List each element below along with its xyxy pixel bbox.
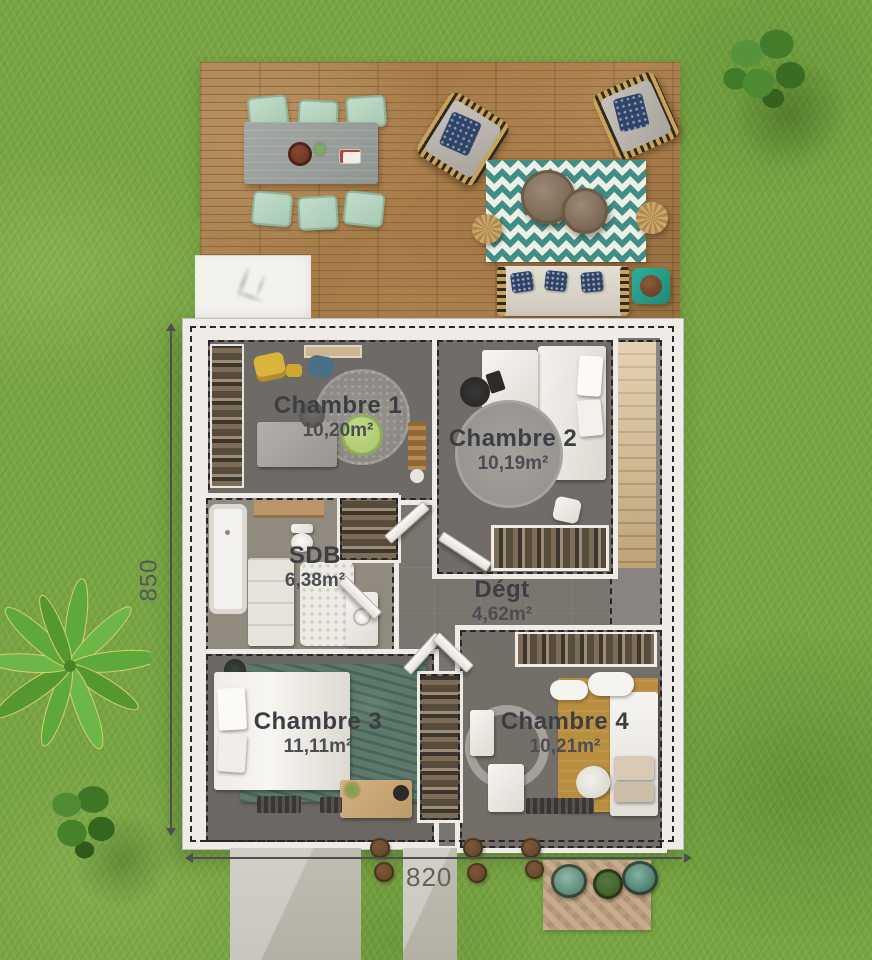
desk-chair bbox=[299, 402, 325, 428]
vanity bbox=[254, 500, 324, 518]
stepping-stone bbox=[370, 838, 390, 858]
wardrobe bbox=[212, 346, 242, 486]
yellow-ottoman bbox=[286, 364, 302, 377]
navy-pillow bbox=[580, 271, 604, 293]
closet bbox=[518, 634, 654, 664]
cloud-shelf bbox=[588, 672, 634, 696]
desk-tray bbox=[393, 785, 409, 801]
bed-pillow bbox=[217, 733, 248, 773]
potted-plant-icon bbox=[593, 869, 623, 899]
waste-bin bbox=[410, 469, 424, 483]
white-roof-section bbox=[195, 255, 311, 320]
stepping-stone bbox=[374, 862, 394, 882]
knit-pouf bbox=[552, 496, 582, 525]
navy-pillow bbox=[510, 271, 535, 294]
toilet-bowl bbox=[291, 533, 313, 552]
stepping-stone bbox=[467, 863, 487, 883]
planter-icon bbox=[288, 142, 312, 166]
staircase bbox=[610, 340, 662, 634]
bed-pillow bbox=[614, 782, 654, 802]
stepping-stone bbox=[521, 838, 541, 858]
yellow-armchair bbox=[253, 351, 288, 383]
round-rug bbox=[455, 400, 563, 508]
navy-pillow bbox=[544, 270, 568, 292]
room-chambre-1 bbox=[208, 340, 436, 500]
sofa-armrest bbox=[497, 266, 506, 316]
bathtub-drain bbox=[225, 530, 230, 535]
concrete-path-wide bbox=[230, 848, 361, 960]
pouf bbox=[472, 214, 502, 244]
dining-chair bbox=[251, 190, 294, 227]
radiator bbox=[526, 798, 594, 814]
dining-chair bbox=[342, 190, 385, 228]
stair-steps bbox=[612, 342, 656, 568]
dimension-arrow-left bbox=[180, 853, 193, 863]
tray-icon bbox=[640, 275, 662, 297]
sofa-armrest bbox=[620, 266, 629, 316]
dimension-left-label: 850 bbox=[136, 558, 164, 601]
bed-pillow bbox=[576, 399, 603, 437]
desk-plant-icon bbox=[342, 780, 362, 800]
outdoor-sofa bbox=[497, 266, 629, 316]
dimension-arrow-right bbox=[684, 853, 697, 863]
cabinet bbox=[470, 710, 494, 756]
pouf bbox=[636, 202, 668, 234]
hall-closet bbox=[340, 498, 398, 560]
dimension-arrow-down bbox=[166, 828, 176, 841]
stepping-stone bbox=[525, 860, 544, 879]
dimension-arrow-up bbox=[166, 318, 176, 331]
central-wardrobe bbox=[420, 674, 460, 820]
room-chambre-2 bbox=[437, 340, 613, 574]
radiator bbox=[257, 796, 301, 813]
bathtub bbox=[209, 504, 247, 614]
shrub-bottom-left-icon bbox=[30, 768, 135, 873]
bed-pillow bbox=[577, 355, 604, 397]
coffee-table bbox=[562, 188, 608, 234]
bed-pillow bbox=[614, 756, 654, 780]
dimension-line-vertical bbox=[170, 324, 172, 832]
dimension-line-horizontal bbox=[186, 857, 682, 859]
dimension-bottom-label: 820 bbox=[406, 862, 452, 893]
tree-top-right-icon bbox=[710, 12, 825, 127]
ladder-shelf bbox=[408, 422, 426, 470]
potted-plant-icon bbox=[551, 864, 587, 898]
room-chambre-3 bbox=[206, 654, 434, 842]
lounge-chair bbox=[590, 69, 681, 162]
palm-plant-icon bbox=[0, 578, 150, 758]
serving-tray bbox=[340, 150, 360, 163]
toilet-tank bbox=[291, 524, 313, 533]
desk bbox=[257, 422, 337, 467]
stepping-stone bbox=[463, 838, 483, 858]
bathroom-cabinet bbox=[248, 558, 294, 646]
cloud-shelf bbox=[550, 680, 588, 700]
table-plant-icon bbox=[312, 140, 328, 158]
branch-shadow bbox=[206, 252, 291, 329]
desk bbox=[488, 764, 524, 812]
teal-side-table bbox=[632, 268, 670, 304]
garden-floor-plan-scene: Chambre 1 10,20m² Chambre 2 10,19m² SDB … bbox=[0, 0, 872, 960]
bed-pillow bbox=[217, 687, 247, 730]
blue-pouf bbox=[306, 354, 335, 379]
closet bbox=[494, 528, 606, 568]
radiator bbox=[320, 797, 342, 813]
room-chambre-4 bbox=[460, 630, 662, 848]
potted-plant-icon bbox=[622, 861, 658, 895]
dining-chair bbox=[297, 195, 339, 231]
green-floor-cushion bbox=[341, 414, 383, 456]
desk-chair bbox=[460, 377, 490, 407]
